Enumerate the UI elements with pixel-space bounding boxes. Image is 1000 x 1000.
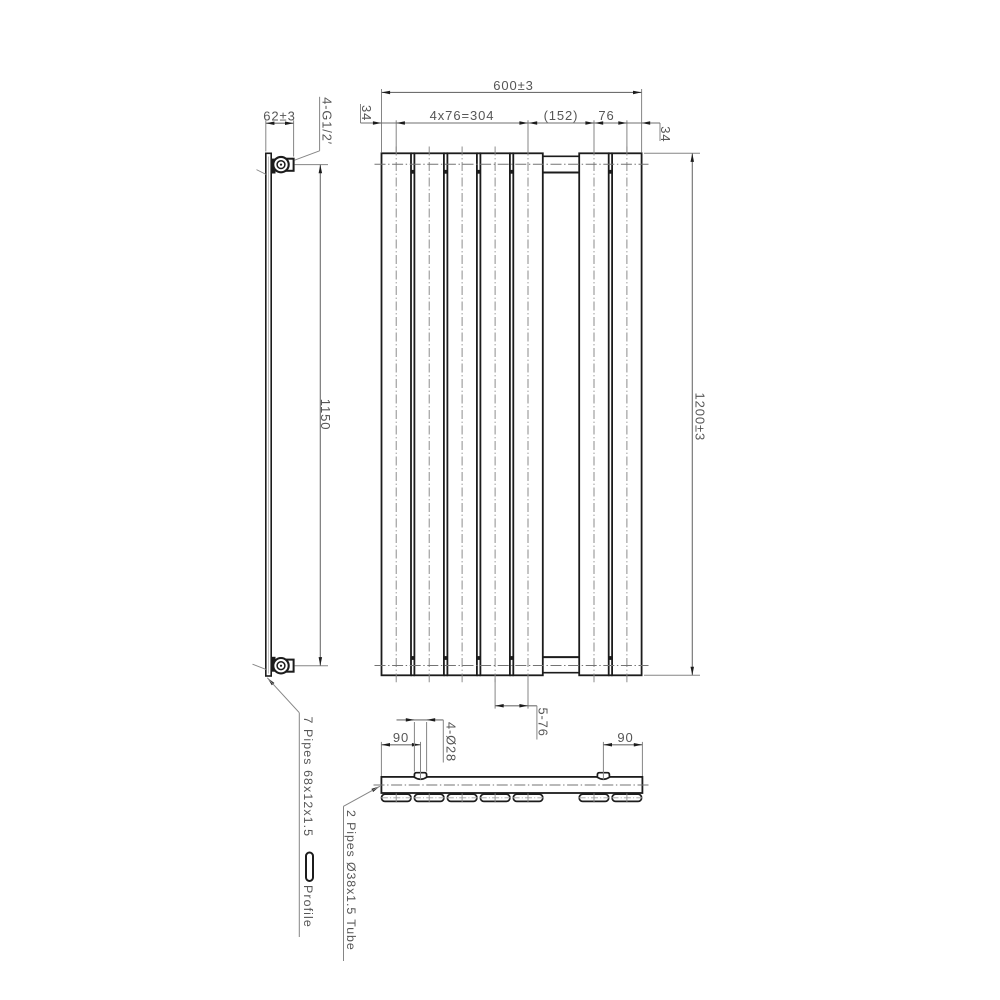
svg-text:2 Pipes Ø38x1.5 Tube: 2 Pipes Ø38x1.5 Tube xyxy=(344,810,358,951)
svg-text:Profile: Profile xyxy=(301,885,315,928)
svg-text:90: 90 xyxy=(393,730,409,745)
svg-text:90: 90 xyxy=(617,730,633,745)
svg-text:34: 34 xyxy=(658,126,673,142)
svg-text:1150: 1150 xyxy=(318,399,333,431)
svg-text:(152): (152) xyxy=(544,108,579,123)
svg-text:4-Ø28: 4-Ø28 xyxy=(444,722,459,762)
svg-text:5-76: 5-76 xyxy=(536,708,551,737)
svg-text:76: 76 xyxy=(598,108,614,123)
svg-text:7 Pipes 68x12x1.5: 7 Pipes 68x12x1.5 xyxy=(301,717,315,838)
svg-text:4-G1/2′: 4-G1/2′ xyxy=(319,97,334,145)
svg-text:62±3: 62±3 xyxy=(263,108,295,123)
svg-text:34: 34 xyxy=(359,105,374,121)
svg-text:4x76=304: 4x76=304 xyxy=(430,108,495,123)
svg-text:600±3: 600±3 xyxy=(493,78,534,93)
svg-text:1200±3: 1200±3 xyxy=(693,393,708,442)
